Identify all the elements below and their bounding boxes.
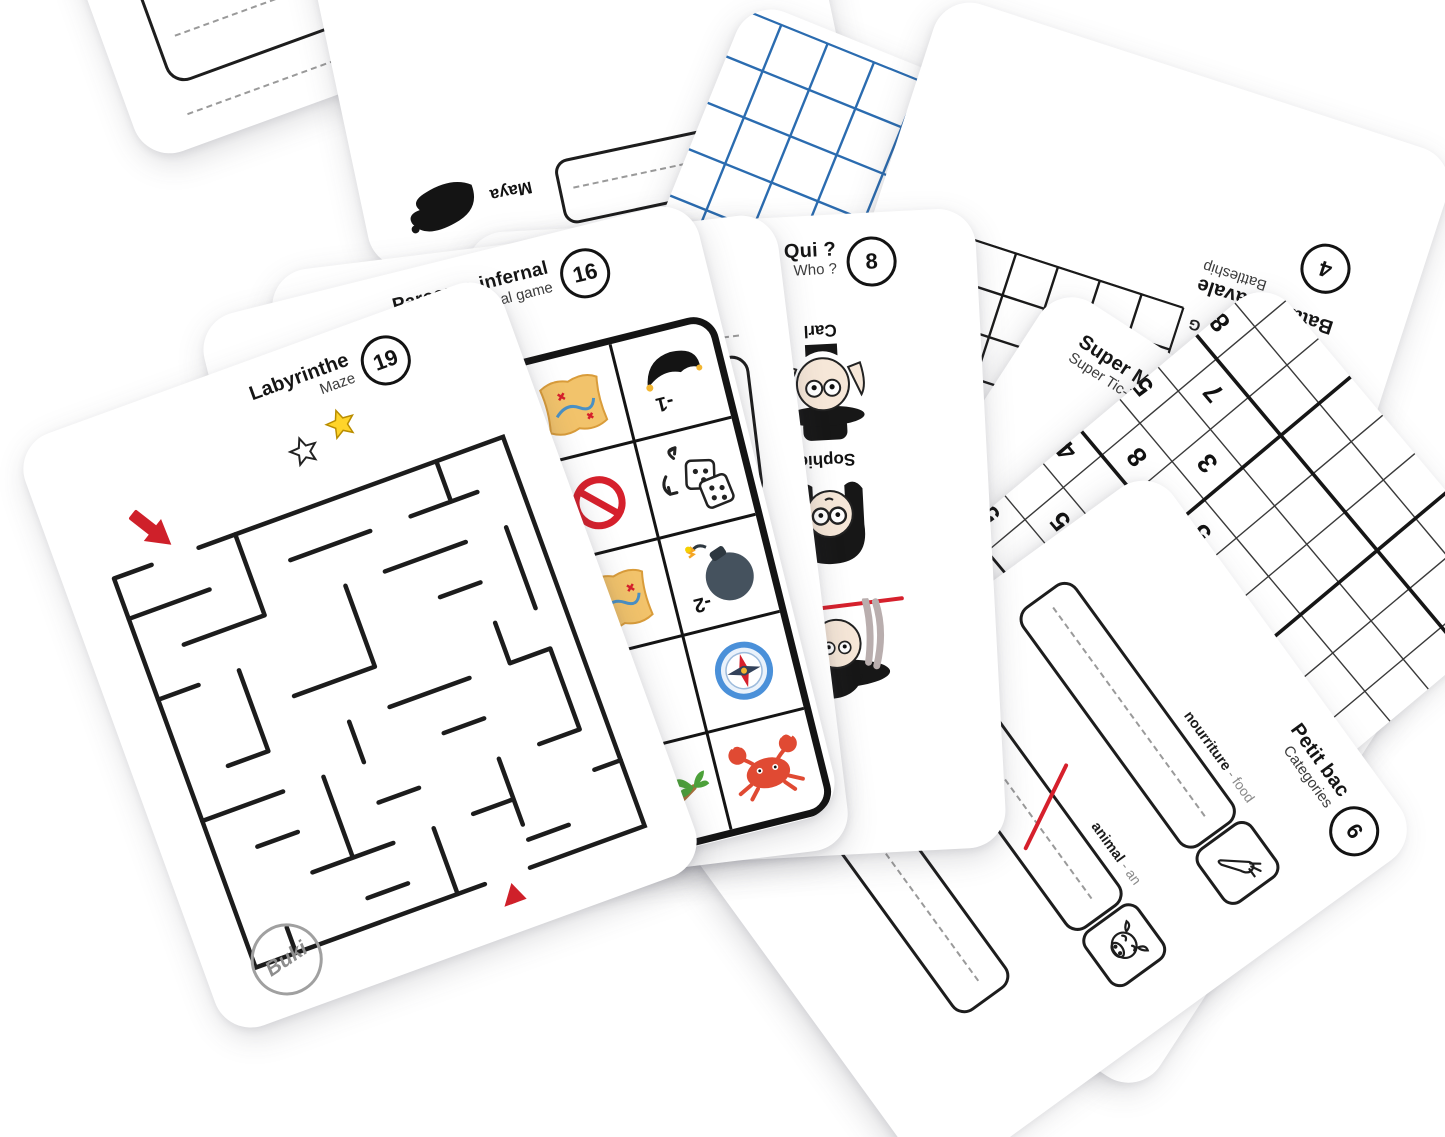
carrot-icon	[1207, 832, 1268, 893]
maze-entry-arrow	[118, 494, 185, 565]
card-fan-stage: Maya 6 7 Bataille navale Battleship 4	[0, 0, 1445, 1137]
character-name: Maya	[488, 176, 534, 204]
cow-icon	[1093, 915, 1154, 976]
card-number-badge: 19	[354, 328, 418, 392]
character-name: Carl	[803, 319, 837, 341]
character-name: Sophie	[798, 449, 856, 472]
buki-logo-text: Buki	[261, 937, 312, 982]
card-number-badge: 16	[555, 243, 616, 304]
card-number-badge: 8	[845, 235, 898, 288]
card-number-badge: 6	[1319, 796, 1389, 866]
maze-exit-arrow	[493, 877, 541, 936]
maya-portrait-icon	[398, 168, 487, 243]
